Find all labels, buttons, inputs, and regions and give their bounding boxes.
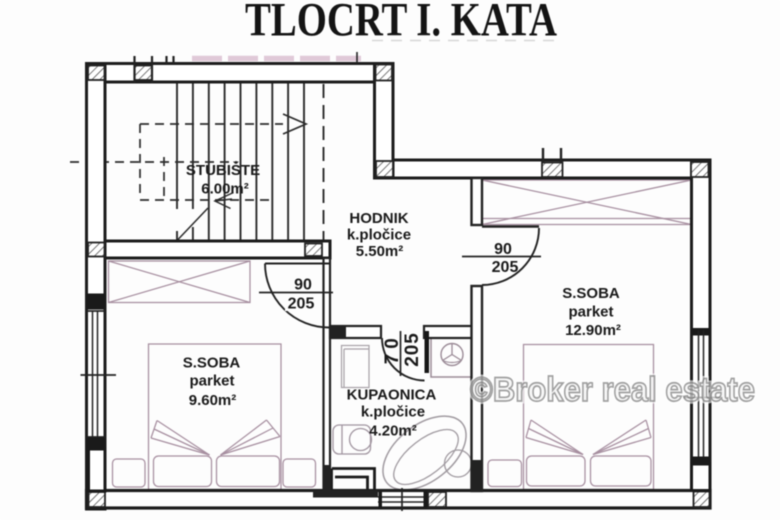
svg-text:0: 0 — [402, 345, 423, 356]
svg-text:9.60m²: 9.60m² — [189, 392, 237, 409]
svg-text:k.pločice: k.pločice — [361, 404, 425, 421]
svg-text:5.50m²: 5.50m² — [356, 243, 404, 260]
svg-text:KUPAONICA: KUPAONICA — [347, 387, 437, 404]
svg-text:S.SOBA: S.SOBA — [562, 285, 620, 302]
svg-text:2: 2 — [402, 356, 423, 367]
svg-text:5: 5 — [402, 333, 423, 344]
svg-text:parket: parket — [568, 304, 613, 321]
svg-text:©Broker real estate: ©Broker real estate — [470, 371, 755, 409]
svg-text:6.00m²: 6.00m² — [201, 181, 249, 198]
svg-text:STUBIŠTE: STUBIŠTE — [186, 161, 260, 179]
svg-text:12.90m²: 12.90m² — [565, 322, 621, 339]
svg-text:90: 90 — [294, 277, 312, 294]
svg-text:S.SOBA: S.SOBA — [183, 355, 241, 372]
svg-text:90: 90 — [494, 241, 512, 258]
svg-text:205: 205 — [492, 259, 519, 276]
svg-text:HODNIK: HODNIK — [349, 210, 408, 227]
svg-text:205: 205 — [288, 296, 315, 313]
svg-text:4.20m²: 4.20m² — [369, 423, 417, 440]
svg-text:TLOCRT I. KATA: TLOCRT I. KATA — [245, 0, 557, 47]
svg-text:k.pločice: k.pločice — [347, 227, 411, 244]
svg-text:parket: parket — [189, 373, 234, 390]
